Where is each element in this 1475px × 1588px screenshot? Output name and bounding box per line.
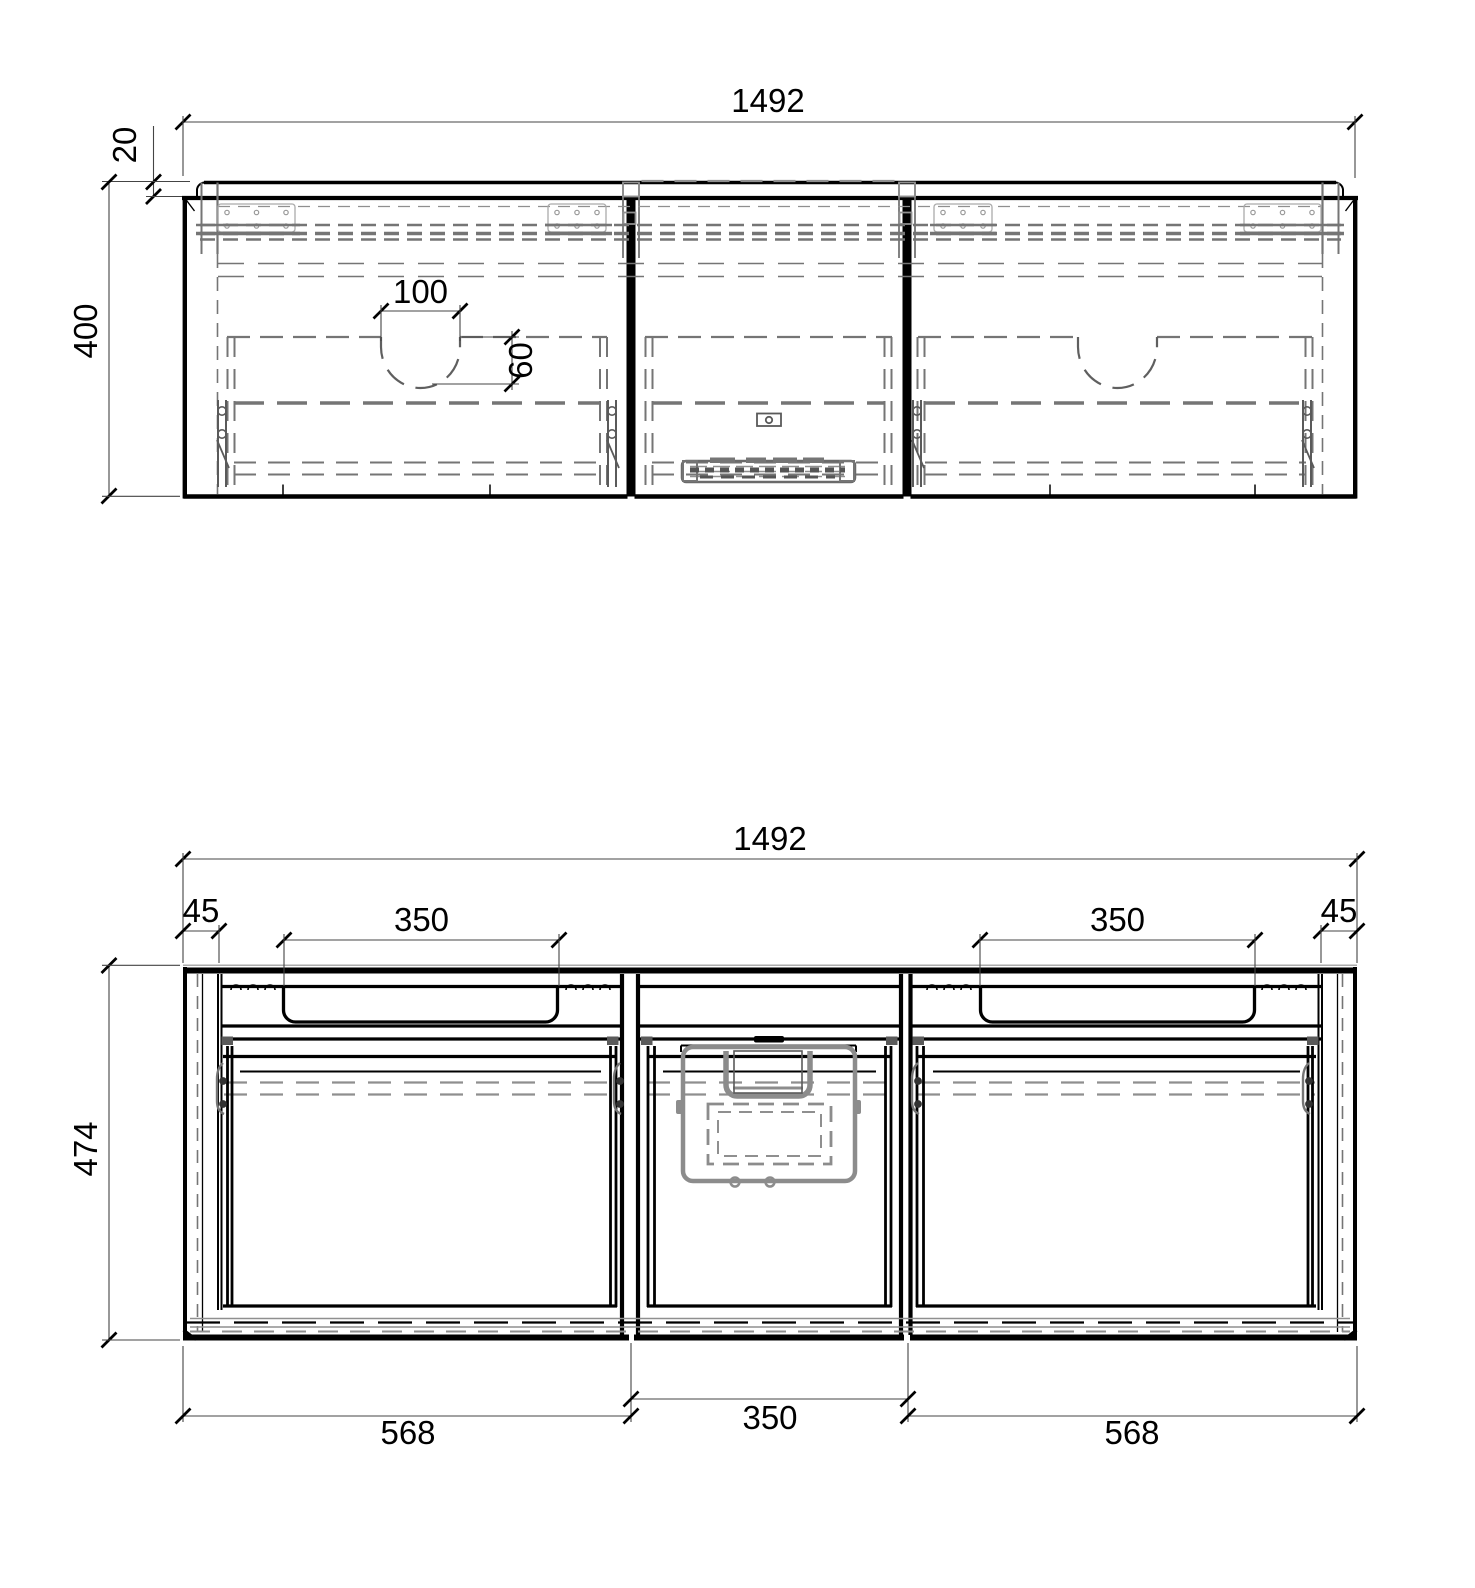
svg-text:20: 20 [106, 127, 143, 164]
svg-text:400: 400 [67, 303, 104, 358]
svg-text:1492: 1492 [733, 820, 806, 857]
svg-text:350: 350 [742, 1399, 797, 1436]
svg-text:350: 350 [394, 901, 449, 938]
svg-text:60: 60 [502, 342, 539, 379]
svg-text:1492: 1492 [731, 82, 804, 119]
svg-text:350: 350 [1090, 901, 1145, 938]
svg-text:568: 568 [380, 1414, 435, 1451]
svg-text:100: 100 [393, 273, 448, 310]
svg-text:568: 568 [1104, 1414, 1159, 1451]
svg-text:45: 45 [1321, 892, 1358, 929]
svg-text:474: 474 [67, 1121, 104, 1176]
svg-text:45: 45 [183, 892, 220, 929]
